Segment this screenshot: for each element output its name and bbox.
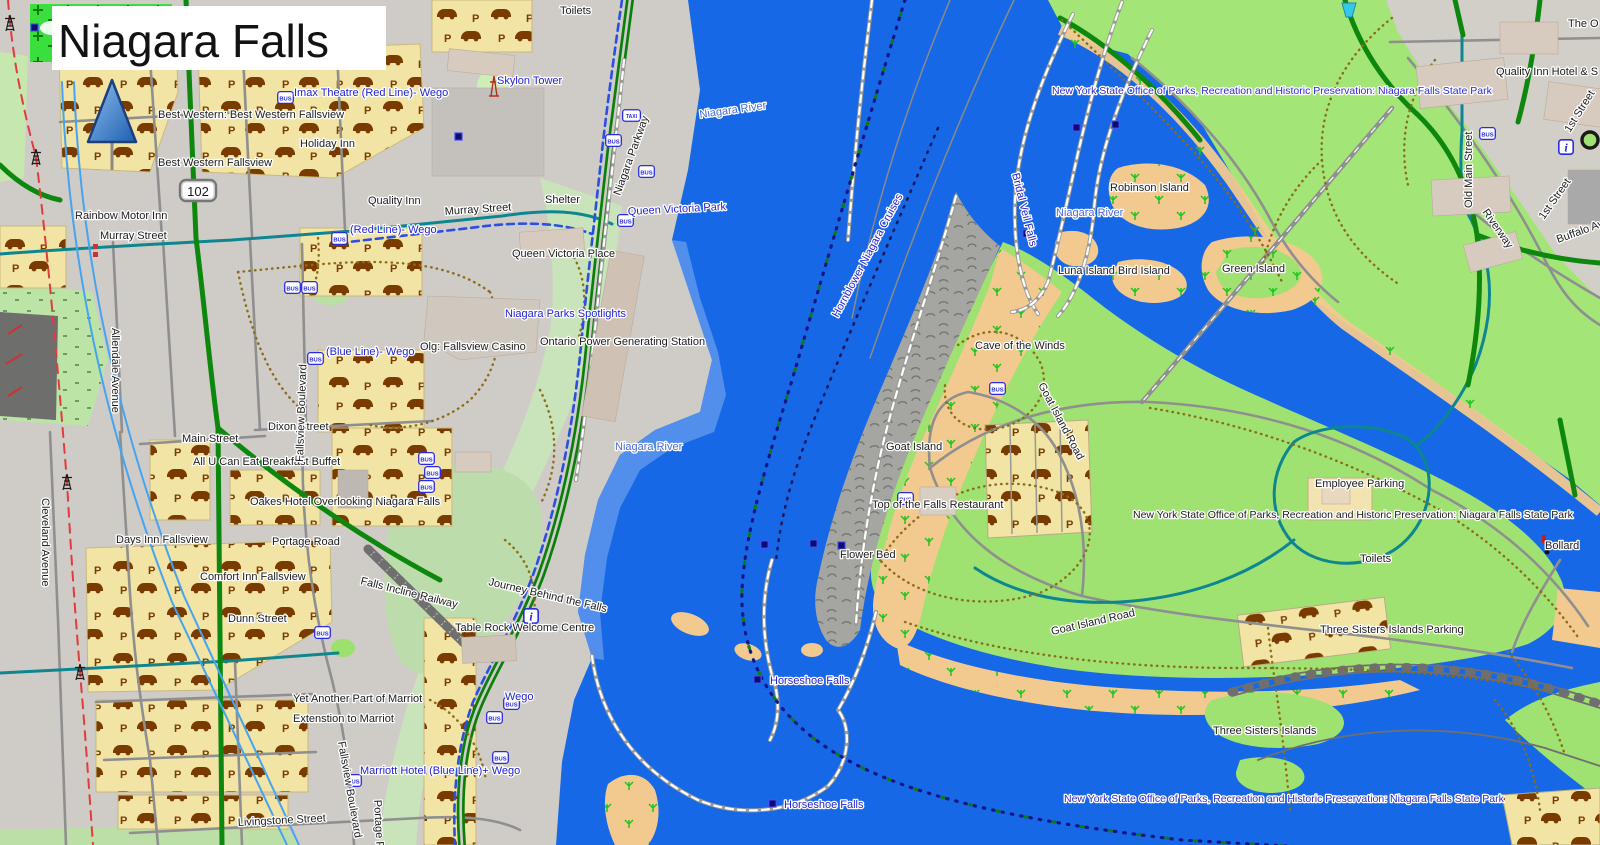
bus-stop-icon (315, 627, 331, 639)
label-olg-casino: Olg: Fallsview Casino (420, 341, 526, 353)
label-horseshoe-falls: Horseshoe Falls (784, 799, 864, 811)
niagara-map-canvas[interactable]: P P BUS TAXI i (0, 0, 1600, 845)
label-oakes-hotel: Oakes Hotel Overlooking Niagara Falls (250, 496, 441, 508)
bus-stop-icon (332, 233, 348, 245)
label-main-street: Main Street (182, 433, 238, 445)
label-days-inn: Days Inn Fallsview (116, 534, 208, 546)
bus-stop-icon (493, 752, 509, 764)
map-marker-icon (754, 676, 761, 683)
label-comfort-inn: Comfort Inn Fallsview (200, 571, 306, 583)
map-marker-icon (31, 24, 38, 31)
label-three-sisters-parking: Three Sisters Islands Parking (1320, 624, 1464, 636)
label-spotlights: Niagara Parks Spotlights (505, 308, 627, 320)
page-title: Niagara Falls (58, 15, 329, 67)
label-luna-bird: Luna Island Bird Island (1058, 265, 1170, 277)
bus-stop-icon (285, 282, 301, 294)
label-goat-island: Goat Island (886, 441, 942, 453)
shield-number: 102 (187, 184, 209, 199)
bus-stop-icon (419, 481, 435, 493)
label-quality-inn-hotel: Quality Inn Hotel & S (1496, 66, 1598, 78)
label-top-falls: Top of the Falls Restaurant (872, 499, 1003, 511)
label-niagara-river: Niagara River (615, 441, 683, 453)
label-queen-victoria-place: Queen Victoria Place (512, 248, 615, 260)
label-breakfast-buffet: All U Can Eat Breakfast Buffet (193, 456, 340, 468)
building (455, 452, 491, 472)
building (1568, 170, 1600, 224)
label-cave-winds: Cave of the Winds (975, 340, 1065, 352)
label-ext-marriot: Extenstion to Marriot (293, 713, 394, 725)
label-horseshoe-falls: Horseshoe Falls (770, 675, 850, 687)
label-quality-inn: Quality Inn (368, 195, 421, 207)
red-tick (93, 244, 98, 249)
label-parks-dept-black: New York State Office of Parks, Recreati… (1133, 509, 1574, 521)
bus-stop-icon (308, 353, 324, 365)
route-shield-102: 102 (180, 180, 216, 201)
map-marker-icon (810, 540, 817, 547)
bus-stop-icon (278, 92, 294, 104)
label-parks-dept-top: New York State Office of Parks, Recreati… (1052, 85, 1493, 97)
label-red-line-wego: (Red Line)- Wego (350, 224, 437, 236)
label-wego: Wego (505, 691, 534, 703)
bus-stop-icon (419, 453, 435, 465)
red-tick (93, 252, 98, 257)
label-blue-line-wego: (Blue Line)- Wego (326, 346, 414, 358)
label-best-western: Best Western Fallsview (158, 157, 272, 169)
label-table-rock: Table Rock Welcome Centre (455, 622, 594, 634)
bus-stop-icon (302, 282, 318, 294)
label-employee-parking: Employee Parking (1315, 478, 1404, 490)
building (432, 88, 544, 176)
label-allendale: Allendale Avenue (109, 328, 121, 413)
label-portage-road: Portage Road (371, 800, 387, 845)
info-icon (1559, 140, 1573, 155)
tan-lot (1552, 588, 1600, 648)
map-marker-icon (1112, 121, 1119, 128)
corner-lot (1502, 788, 1600, 845)
label-dunn-street: Dunn Street (228, 613, 287, 625)
label-shelter: Shelter (545, 194, 580, 206)
map-marker-icon (455, 133, 462, 140)
table-rock-building (461, 635, 516, 664)
bus-stop-icon (606, 135, 622, 147)
label-green-island: Green Island (1222, 263, 1285, 275)
label-skylon: Skylon Tower (497, 75, 563, 87)
industrial-building (0, 312, 58, 420)
label-best-western-full: Best Western: Best Western Fallsview (158, 109, 344, 121)
green-area (0, 52, 28, 182)
label-portage-road: Portage Road (272, 536, 340, 548)
bus-stop-icon (990, 383, 1006, 395)
label-murray-street: Murray Street (100, 230, 167, 242)
label-holiday-inn: Holiday Inn (300, 138, 355, 150)
label-flower-bed: Flower Bed (840, 549, 896, 561)
bus-stop-icon (639, 166, 655, 178)
roundabout (1582, 132, 1598, 148)
label-robinson-island: Robinson Island (1110, 182, 1189, 194)
label-three-sisters: Three Sisters Islands (1213, 725, 1317, 737)
label-toilets: Toilets (560, 5, 592, 17)
islet (801, 643, 823, 657)
label-power-station: Ontario Power Generating Station (540, 336, 705, 348)
bus-stop-icon (425, 467, 441, 479)
bus-stop-icon (487, 712, 503, 724)
building (1416, 58, 1508, 109)
building (1500, 22, 1558, 54)
label-yet-marriot: Yet Another Part of Marriot (293, 693, 422, 705)
label-rainbow-motor-inn: Rainbow Motor Inn (75, 210, 167, 222)
label-the-o: The O (1568, 18, 1599, 30)
map-marker-icon (769, 800, 776, 807)
map-viewport[interactable]: P P BUS TAXI i (0, 0, 1600, 845)
label-imax: Imax Theatre (Red Line)- Wego (294, 87, 448, 99)
label-cleveland: Cleveland Avenue (39, 498, 51, 586)
label-bollard: Bollard (1545, 540, 1579, 552)
label-marriott-wego: Marriott Hotel (Blue Line)+ Wego (360, 765, 520, 777)
label-old-main: Old Main Street (1463, 132, 1475, 208)
label-niagara-river: Niagara River (1056, 207, 1124, 219)
map-marker-icon (761, 541, 768, 548)
bus-stop-icon (1480, 128, 1496, 140)
label-parks-dept-bottom: New York State Office of Parks, Recreati… (1064, 793, 1505, 805)
label-toilets: Toilets (1360, 553, 1392, 565)
map-marker-icon (1073, 124, 1080, 131)
